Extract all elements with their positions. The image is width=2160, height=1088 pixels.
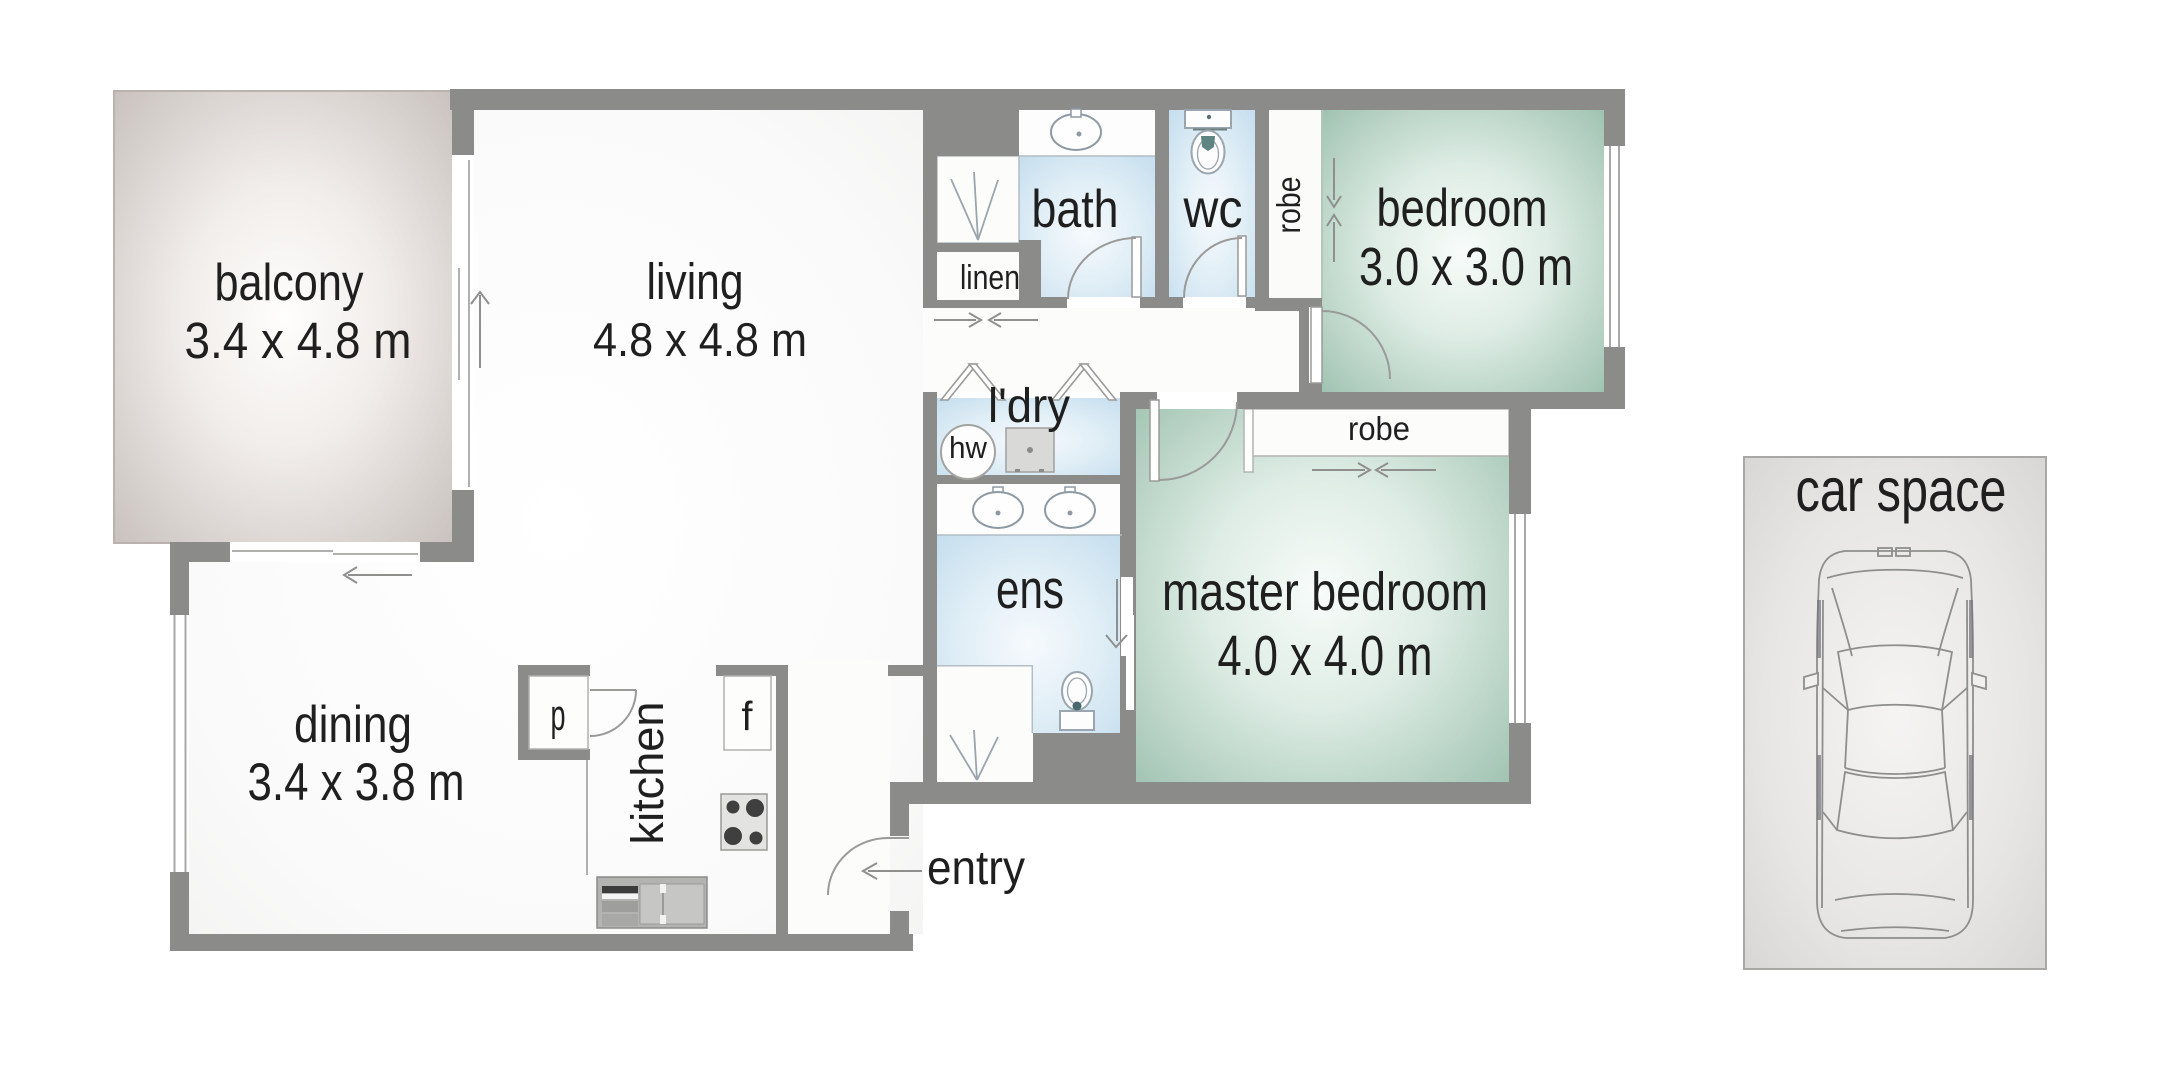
svg-text:4.8 x 4.8 m: 4.8 x 4.8 m	[593, 313, 807, 366]
svg-text:master bedroom: master bedroom	[1162, 562, 1488, 622]
svg-text:dining: dining	[294, 696, 412, 754]
svg-text:4.0 x 4.0 m: 4.0 x 4.0 m	[1218, 624, 1433, 688]
svg-text:car space: car space	[1796, 456, 2007, 524]
svg-text:3.0 x 3.0 m: 3.0 x 3.0 m	[1359, 237, 1573, 297]
svg-text:bedroom: bedroom	[1377, 179, 1548, 238]
svg-text:wc: wc	[1183, 179, 1243, 239]
svg-text:p: p	[551, 691, 566, 740]
svg-text:balcony: balcony	[215, 254, 364, 312]
svg-text:l'dry: l'dry	[988, 380, 1070, 433]
svg-text:bath: bath	[1032, 180, 1119, 239]
svg-text:3.4 x 3.8 m: 3.4 x 3.8 m	[248, 753, 465, 812]
svg-text:robe: robe	[1348, 410, 1410, 447]
svg-text:3.4 x 4.8 m: 3.4 x 4.8 m	[185, 312, 412, 369]
svg-text:linen: linen	[960, 259, 1020, 297]
svg-text:living: living	[647, 253, 744, 310]
svg-text:entry: entry	[927, 842, 1025, 895]
svg-text:ens: ens	[996, 558, 1064, 620]
svg-text:robe: robe	[1270, 177, 1307, 234]
svg-text:hw: hw	[949, 430, 988, 465]
svg-text:kitchen: kitchen	[622, 702, 673, 845]
svg-text:f: f	[742, 693, 754, 739]
